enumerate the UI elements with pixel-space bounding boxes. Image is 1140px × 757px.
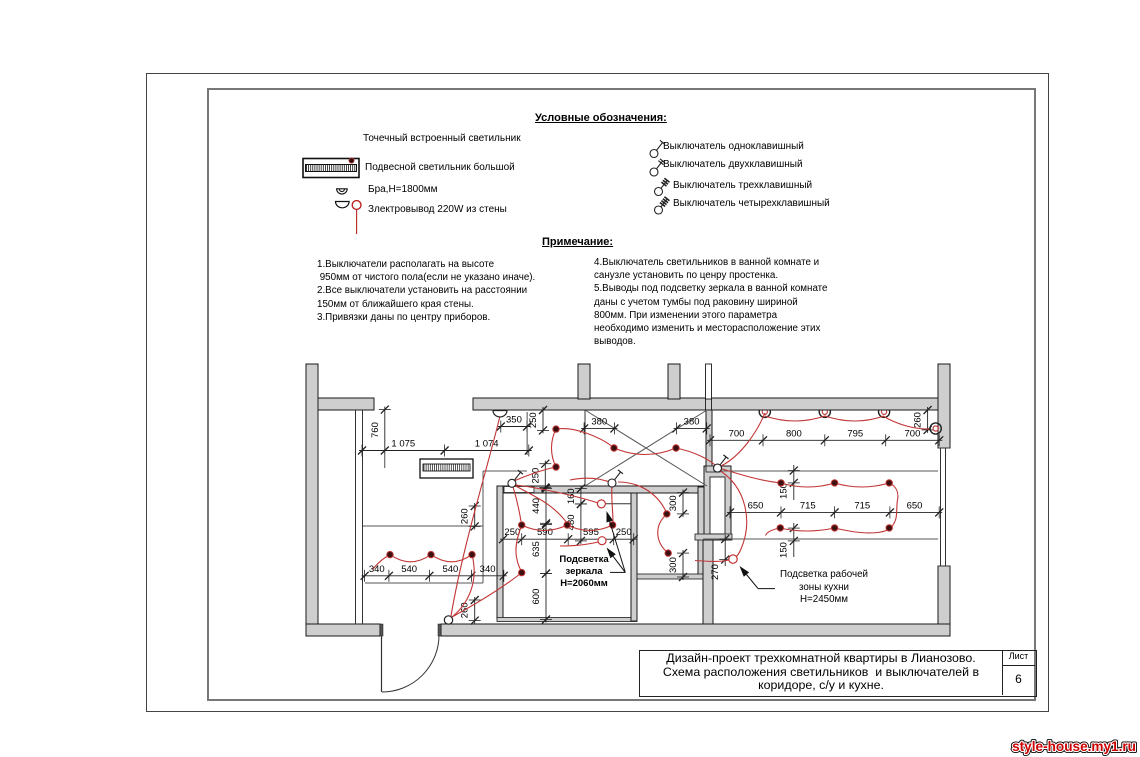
svg-text:700: 700 bbox=[905, 428, 921, 439]
svg-text:595: 595 bbox=[583, 527, 599, 538]
svg-text:540: 540 bbox=[401, 564, 417, 575]
svg-text:350: 350 bbox=[506, 415, 522, 426]
svg-text:260: 260 bbox=[913, 412, 924, 428]
svg-text:260: 260 bbox=[460, 602, 471, 618]
svg-text:715: 715 bbox=[854, 500, 870, 511]
svg-text:635: 635 bbox=[531, 541, 542, 557]
svg-text:700: 700 bbox=[729, 428, 745, 439]
svg-text:1 075: 1 075 bbox=[391, 439, 415, 450]
svg-text:600: 600 bbox=[531, 589, 542, 605]
svg-text:380: 380 bbox=[591, 416, 607, 427]
svg-text:715: 715 bbox=[800, 500, 816, 511]
svg-text:440: 440 bbox=[531, 498, 542, 514]
svg-text:800: 800 bbox=[786, 428, 802, 439]
svg-text:650: 650 bbox=[907, 500, 923, 511]
svg-text:380: 380 bbox=[684, 416, 700, 427]
svg-text:590: 590 bbox=[537, 527, 553, 538]
svg-text:1 074: 1 074 bbox=[475, 439, 499, 450]
svg-text:250: 250 bbox=[528, 412, 539, 428]
svg-text:150: 150 bbox=[779, 542, 790, 558]
svg-text:250: 250 bbox=[530, 468, 541, 484]
svg-text:540: 540 bbox=[442, 564, 458, 575]
svg-text:300: 300 bbox=[668, 495, 679, 511]
svg-text:250: 250 bbox=[616, 527, 632, 538]
svg-text:270: 270 bbox=[710, 564, 721, 580]
svg-text:300: 300 bbox=[668, 557, 679, 573]
svg-text:760: 760 bbox=[370, 422, 381, 438]
svg-text:style-house.my1.ru: style-house.my1.ru bbox=[1012, 739, 1136, 754]
svg-text:260: 260 bbox=[460, 508, 471, 524]
svg-text:340: 340 bbox=[480, 564, 496, 575]
svg-text:795: 795 bbox=[847, 428, 863, 439]
svg-text:650: 650 bbox=[748, 500, 764, 511]
